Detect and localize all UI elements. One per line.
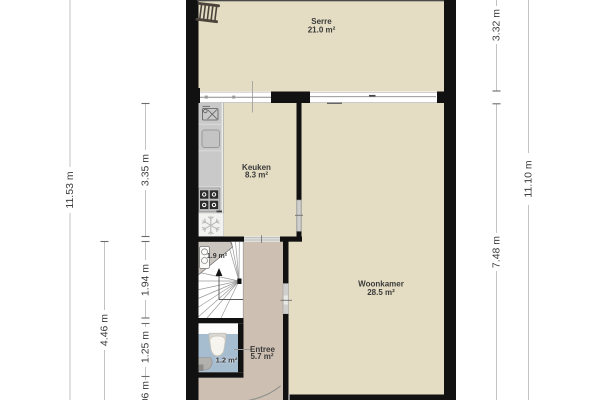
svg-text:1.9 m²: 1.9 m²: [207, 253, 228, 260]
svg-text:3.35 m: 3.35 m: [140, 154, 152, 186]
svg-text:7.48 m: 7.48 m: [491, 236, 503, 268]
svg-text:1.06 m: 1.06 m: [140, 381, 152, 400]
svg-text:5.7 m²: 5.7 m²: [250, 352, 273, 361]
svg-text:21.0 m²: 21.0 m²: [308, 26, 336, 35]
svg-text:28.5 m²: 28.5 m²: [367, 288, 395, 297]
svg-text:3.32 m: 3.32 m: [491, 9, 503, 41]
svg-text:1.94 m: 1.94 m: [140, 264, 152, 296]
svg-text:11.10 m: 11.10 m: [523, 160, 535, 197]
svg-text:1.2 m²: 1.2 m²: [216, 356, 238, 365]
svg-text:4.46 m: 4.46 m: [99, 314, 111, 346]
svg-text:8.3 m²: 8.3 m²: [245, 171, 268, 180]
svg-text:1.25 m: 1.25 m: [140, 331, 152, 363]
svg-text:11.53 m: 11.53 m: [64, 171, 76, 208]
